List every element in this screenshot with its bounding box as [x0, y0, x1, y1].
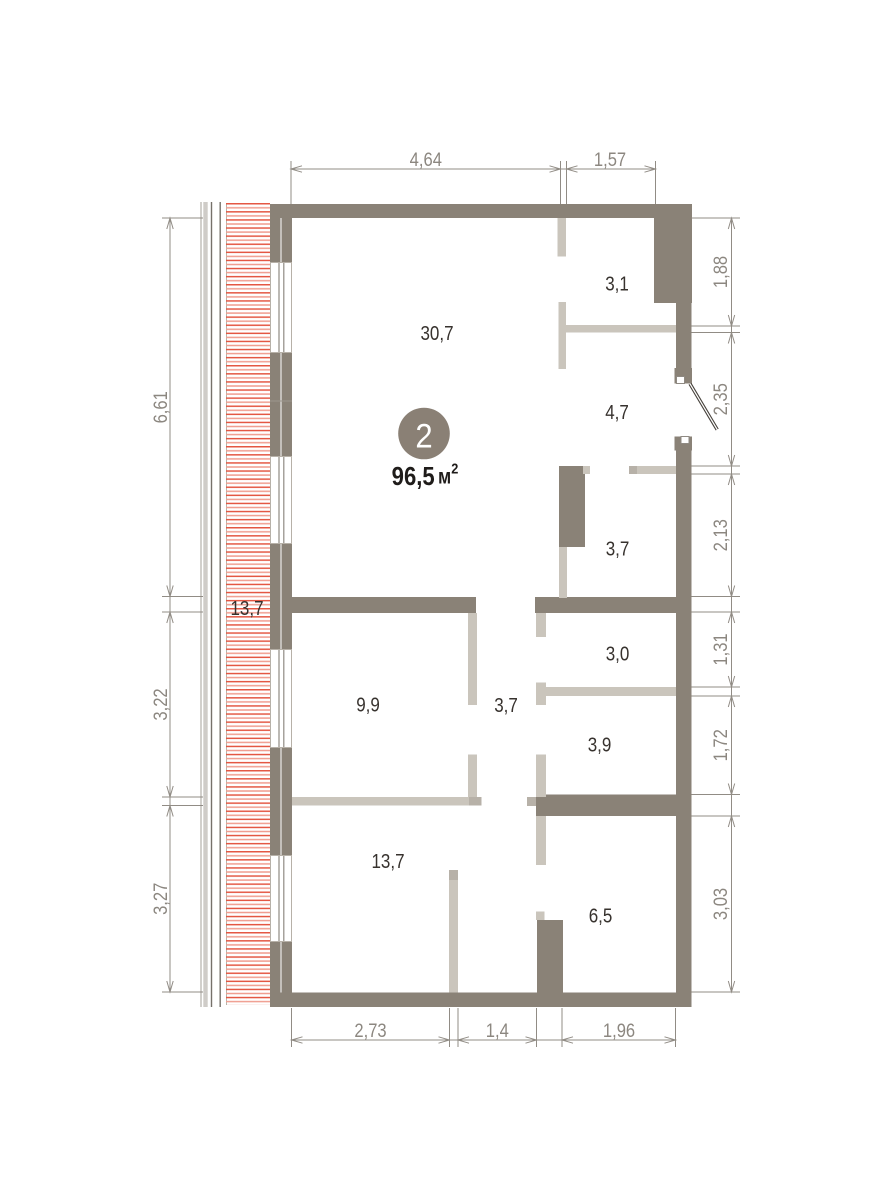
svg-text:4,64: 4,64	[410, 149, 442, 171]
svg-text:3,7: 3,7	[494, 694, 518, 717]
svg-text:3,03: 3,03	[710, 888, 732, 920]
svg-text:1,72: 1,72	[710, 729, 732, 761]
svg-text:30,7: 30,7	[420, 322, 453, 345]
svg-text:6,61: 6,61	[150, 391, 172, 423]
svg-text:2,35: 2,35	[710, 383, 732, 415]
svg-text:9,9: 9,9	[356, 693, 380, 716]
svg-text:1,31: 1,31	[710, 633, 732, 665]
svg-text:13,7: 13,7	[371, 850, 404, 873]
svg-text:6,5: 6,5	[589, 904, 613, 927]
svg-text:1,88: 1,88	[710, 256, 732, 288]
svg-text:4,7: 4,7	[605, 401, 629, 424]
svg-text:3,7: 3,7	[606, 537, 630, 560]
svg-text:3,0: 3,0	[606, 642, 630, 665]
svg-text:1,96: 1,96	[603, 1020, 635, 1042]
svg-text:3,22: 3,22	[150, 688, 172, 720]
svg-text:3,9: 3,9	[588, 733, 612, 756]
svg-text:1,4: 1,4	[486, 1020, 509, 1042]
svg-text:2,73: 2,73	[354, 1020, 386, 1042]
svg-text:1,57: 1,57	[594, 149, 626, 171]
svg-text:2,13: 2,13	[710, 519, 732, 551]
svg-text:3,1: 3,1	[605, 272, 629, 295]
svg-text:96,5м2: 96,5м2	[392, 459, 459, 491]
svg-text:13,7: 13,7	[230, 597, 263, 620]
svg-text:3,27: 3,27	[150, 883, 172, 915]
svg-text:2: 2	[415, 416, 432, 455]
